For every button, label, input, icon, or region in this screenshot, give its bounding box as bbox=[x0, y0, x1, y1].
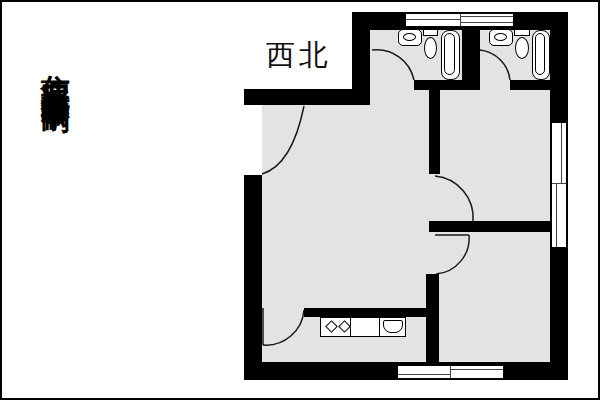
bedroom1-door-arc bbox=[435, 176, 473, 221]
kitchen-door-arc bbox=[263, 310, 304, 345]
screenshot-root: 住宅西北方缺角影响子嗣 西北 bbox=[0, 0, 600, 400]
bath1-door-arc bbox=[372, 50, 414, 80]
entry-door-arc bbox=[262, 106, 304, 174]
door-arcs bbox=[2, 2, 598, 398]
bath2-door-arc bbox=[480, 50, 510, 80]
bedroom2-door-arc bbox=[436, 235, 469, 274]
